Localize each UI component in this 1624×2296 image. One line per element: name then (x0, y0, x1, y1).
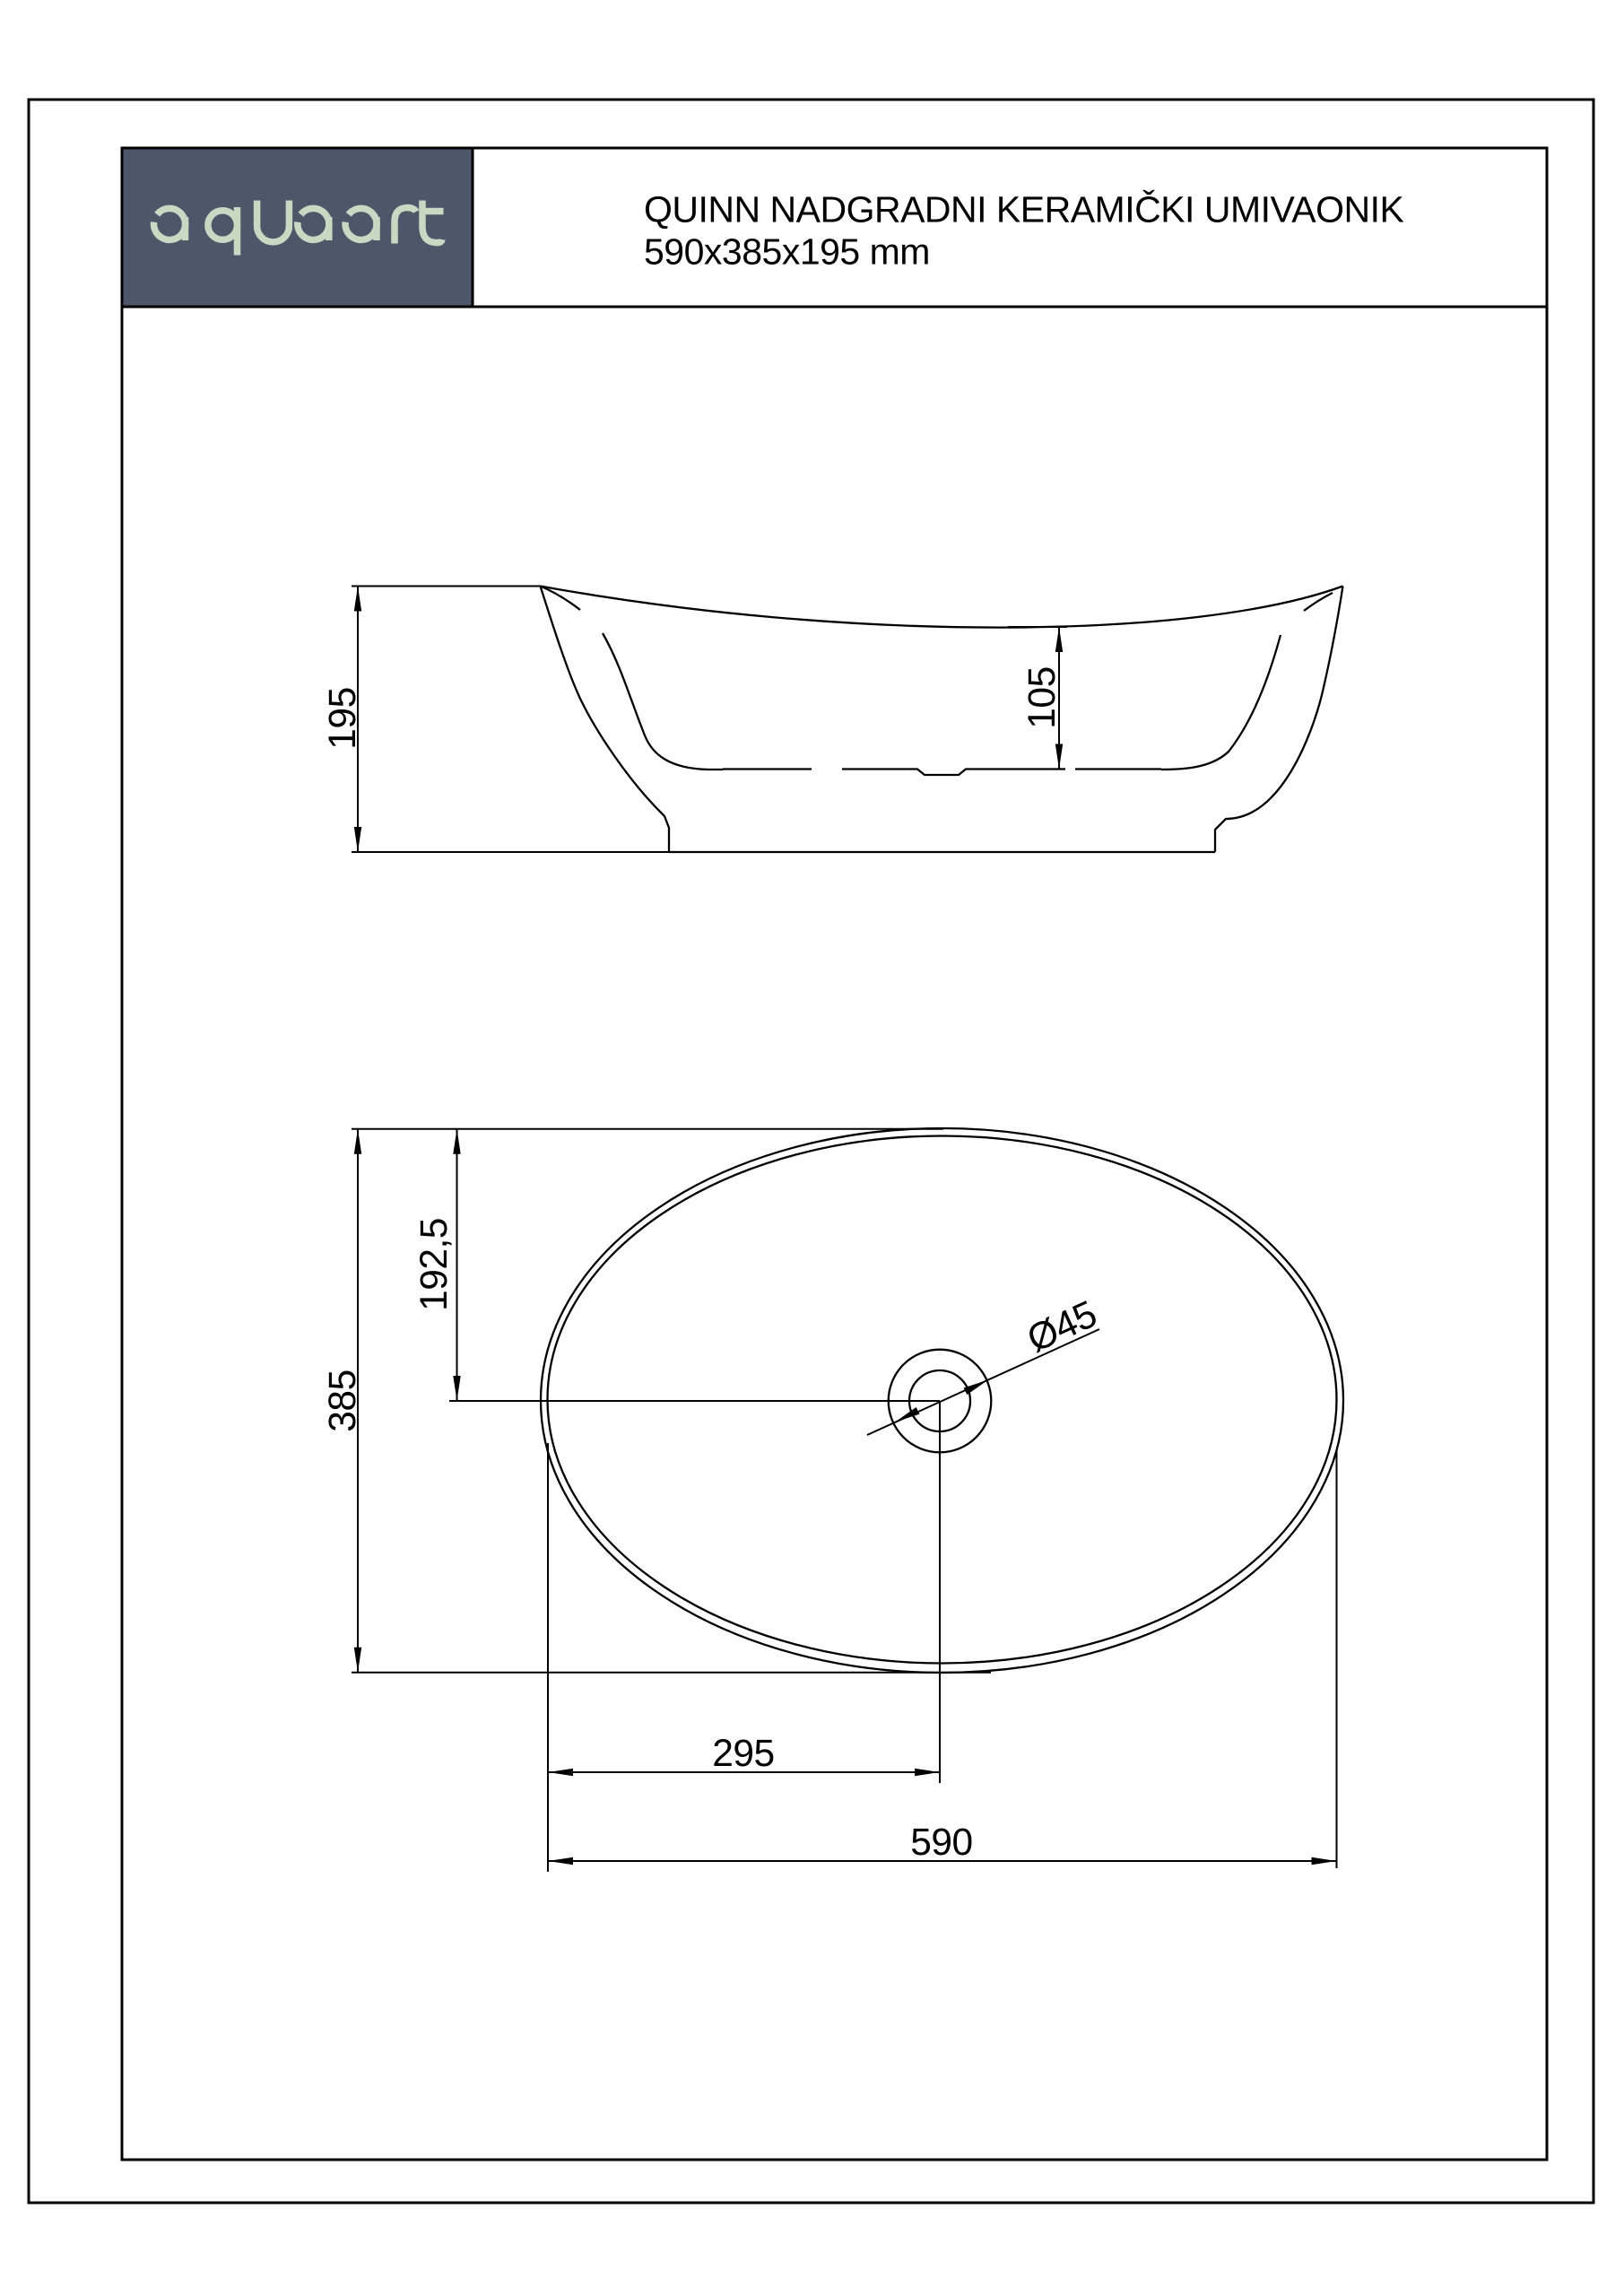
svg-text:590: 590 (910, 1822, 972, 1864)
svg-text:295: 295 (712, 1733, 774, 1775)
svg-text:590x385x195 mm: 590x385x195 mm (644, 231, 930, 273)
svg-text:195: 195 (322, 687, 364, 749)
svg-text:192,5: 192,5 (413, 1218, 456, 1311)
svg-text:QUINN NADGRADNI KERAMIČKI UMIV: QUINN NADGRADNI KERAMIČKI UMIVAONIK (644, 189, 1404, 230)
svg-text:385: 385 (322, 1370, 364, 1431)
svg-text:105: 105 (1021, 666, 1064, 728)
